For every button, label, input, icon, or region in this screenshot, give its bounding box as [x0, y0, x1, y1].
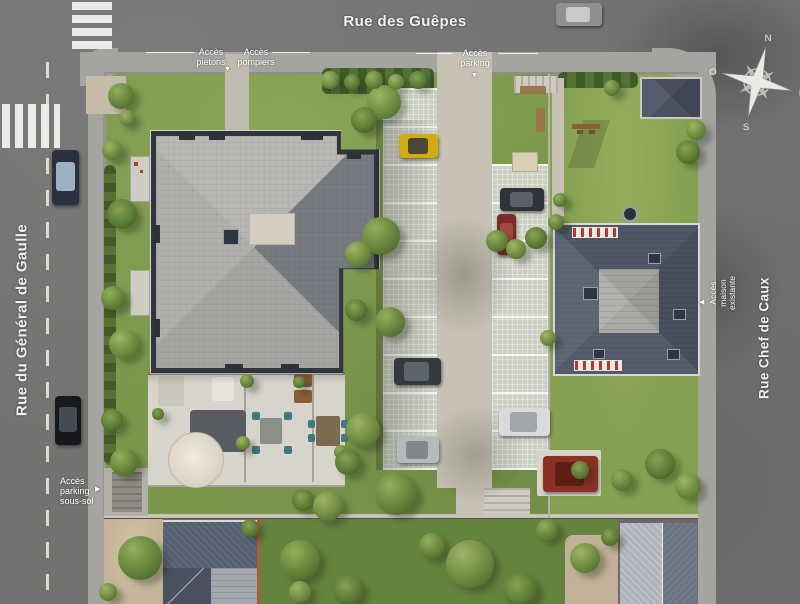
arrow-right-icon: ▶ [95, 486, 100, 493]
tree [446, 540, 494, 588]
leader-line [416, 53, 452, 54]
tree [536, 519, 558, 541]
compass-west-label: O [709, 67, 716, 78]
tree [375, 473, 417, 515]
label-acces-parking-sous-sol: Accès parking sous-sol [60, 476, 94, 506]
acces-sous-sol-line2: parking [60, 486, 94, 496]
arrow-down-icon: ▼ [224, 66, 231, 73]
tree [365, 71, 383, 89]
tree [506, 239, 526, 259]
arrow-down-icon: ▼ [471, 72, 478, 79]
label-acces-pietons: Accès piétons [191, 47, 231, 67]
tree [109, 329, 139, 359]
tree [236, 436, 250, 450]
compass-south-label: S [743, 122, 749, 133]
leader-line [498, 53, 538, 54]
compass-star-major [713, 38, 800, 125]
tree [241, 519, 259, 537]
street-name-top: Rue des Guêpes [340, 13, 470, 30]
tree [675, 473, 701, 499]
tree [280, 540, 320, 580]
tree [388, 74, 404, 90]
label-acces-maison-existante: Accès maison existante [709, 276, 738, 310]
tree [553, 193, 567, 207]
compass-north-label: N [765, 33, 772, 44]
acces-sous-sol-line3: sous-sol [60, 496, 94, 506]
tree [540, 330, 556, 346]
tree [293, 376, 305, 388]
tree [486, 230, 508, 252]
acces-pietons-line1: Accès [191, 47, 231, 57]
tree [102, 140, 122, 160]
street-name-right: Rue Chef de Caux [757, 277, 772, 399]
label-acces-parking: Accès parking [450, 48, 500, 68]
tree [99, 583, 117, 601]
tree [345, 299, 367, 321]
tree [344, 74, 360, 90]
tree [101, 286, 125, 310]
tree [503, 573, 537, 604]
tree [570, 543, 600, 573]
tree [375, 307, 405, 337]
tree [676, 140, 700, 164]
tree [321, 71, 339, 89]
tree [313, 491, 343, 521]
tree [119, 110, 135, 126]
tree [601, 528, 619, 546]
tree [240, 374, 254, 388]
tree [118, 536, 162, 580]
leader-line [146, 52, 194, 53]
tree [333, 575, 363, 604]
tree [548, 214, 564, 230]
tree [525, 227, 547, 249]
acces-parking-line2: parking [450, 58, 500, 68]
acces-pompiers-line2: pompiers [233, 57, 279, 67]
acces-parking-line1: Accès [450, 48, 500, 58]
acces-sous-sol-line1: Accès [60, 476, 94, 486]
tree [571, 461, 589, 479]
tree [419, 533, 445, 559]
tree [645, 449, 675, 479]
tree [604, 80, 620, 96]
tree [101, 409, 123, 431]
compass-rose: N E S O [705, 30, 800, 134]
aerial-site-plan: Rue des Guêpes Rue du Général de Gaulle … [0, 0, 800, 604]
tree [292, 489, 314, 511]
street-name-left: Rue du Général de Gaulle [14, 224, 31, 416]
arrow-left-icon: ◀ [699, 299, 704, 306]
tree [611, 469, 633, 491]
acces-pompiers-line1: Accès [233, 47, 279, 57]
tree [686, 120, 706, 140]
trees-layer [0, 0, 800, 604]
tree [152, 408, 164, 420]
tree [289, 581, 311, 603]
tree [409, 71, 427, 89]
tree [107, 199, 137, 229]
tree [345, 241, 371, 267]
tree [108, 83, 134, 109]
label-acces-pompiers: Accès pompiers [233, 47, 279, 67]
tree [110, 448, 138, 476]
label-acces-pietons-pompiers: Accès piétons Accès pompiers [191, 47, 279, 67]
tree [351, 107, 377, 133]
tree [346, 413, 380, 447]
tree [335, 449, 361, 475]
acces-maison-line3: existante [728, 276, 738, 310]
